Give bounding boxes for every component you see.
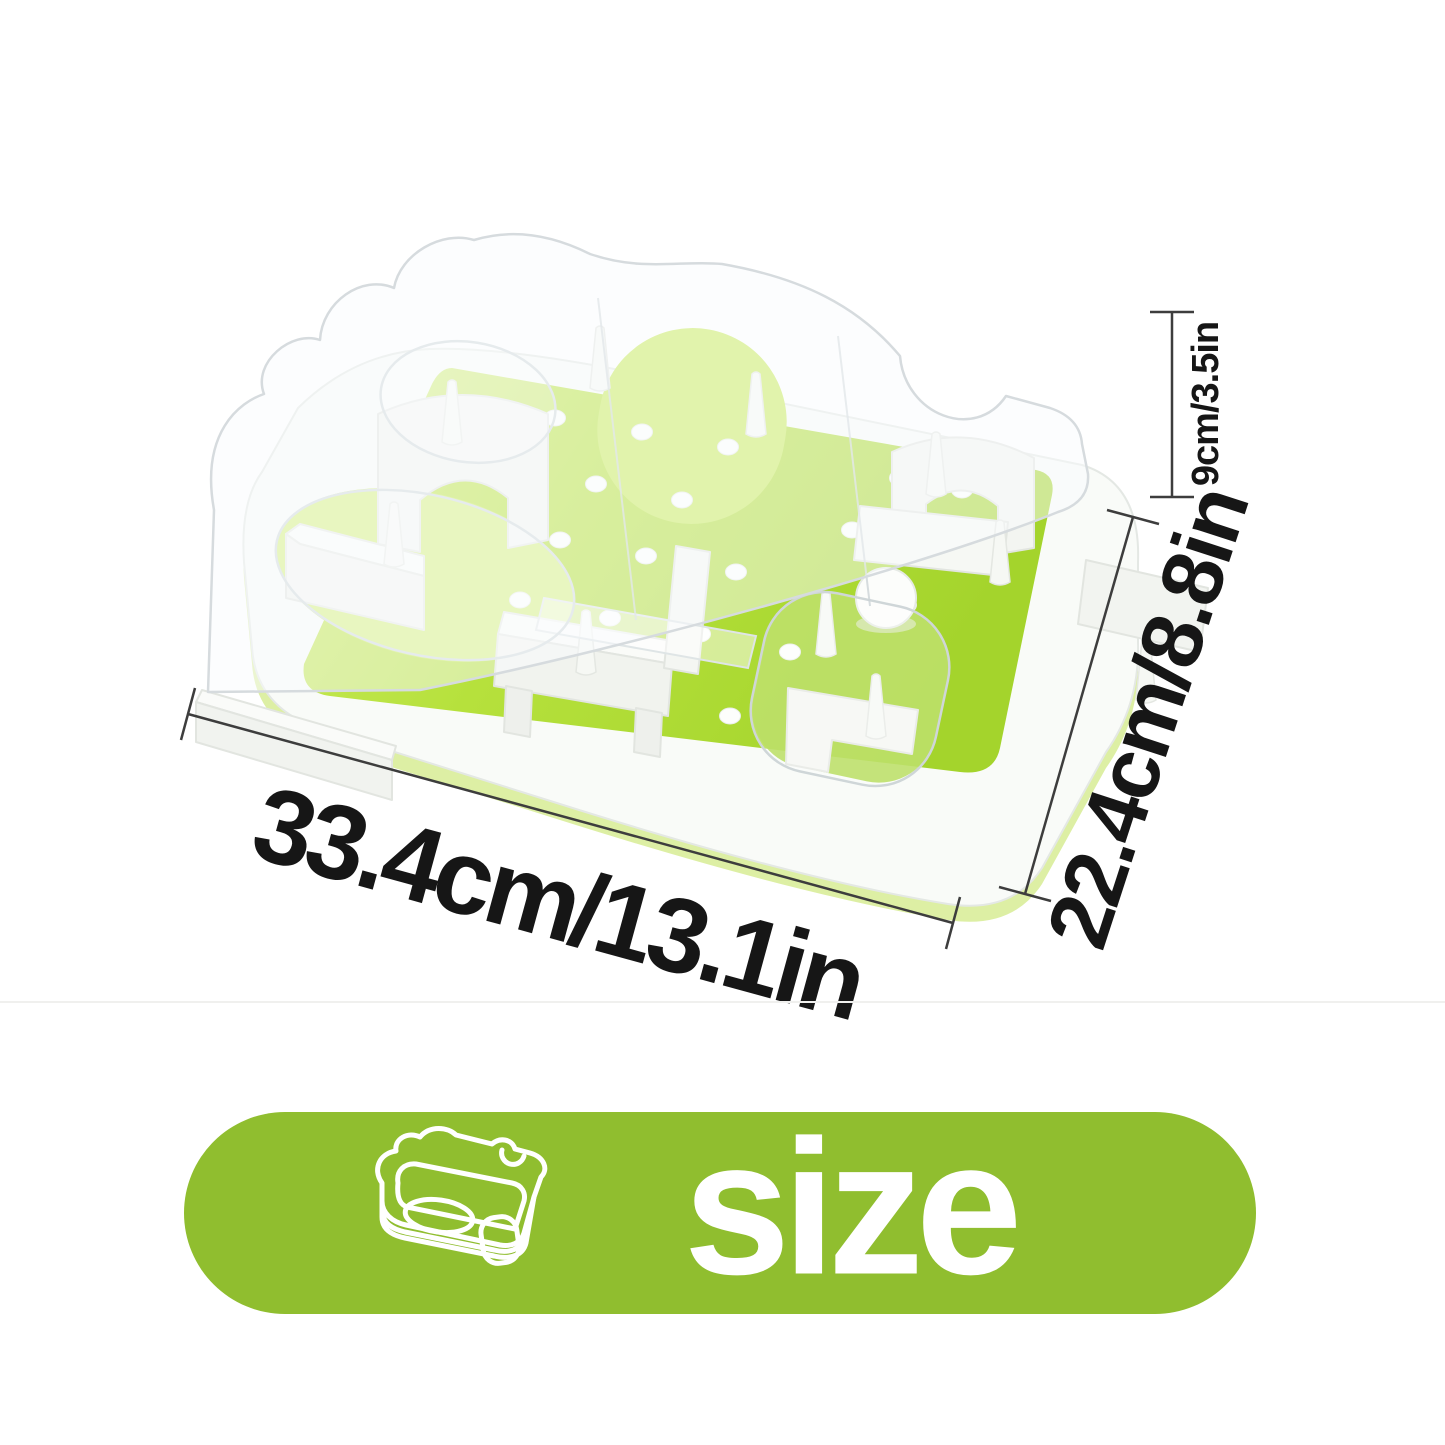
size-banner: size bbox=[184, 1112, 1256, 1314]
feeder-outline-icon bbox=[344, 1123, 594, 1303]
height-dimension-label: 9cm/3.5in bbox=[1187, 322, 1225, 486]
photo-separator-line bbox=[0, 1001, 1445, 1003]
size-banner-label: size bbox=[684, 1096, 1015, 1317]
product-size-page: 33.4cm/13.1in 22.4cm/8.8in 9cm/3.5in bbox=[0, 0, 1445, 1445]
